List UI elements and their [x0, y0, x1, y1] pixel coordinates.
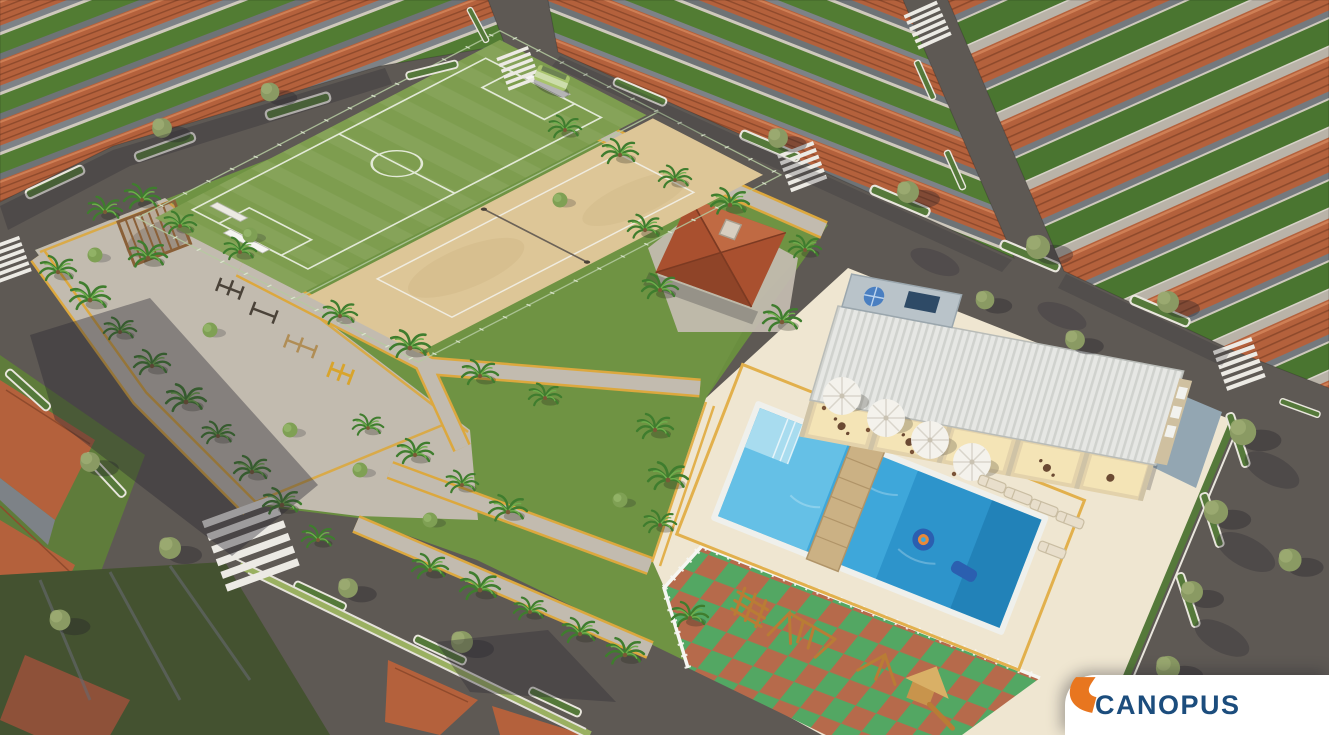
logo-text: CANOPUS [1095, 690, 1241, 721]
canopus-logo-icon [1065, 675, 1099, 715]
brand-logo-card: CANOPUS [1065, 675, 1329, 735]
condominium-aerial-render: CANOPUS [0, 0, 1329, 735]
masterplan-svg [0, 0, 1329, 735]
